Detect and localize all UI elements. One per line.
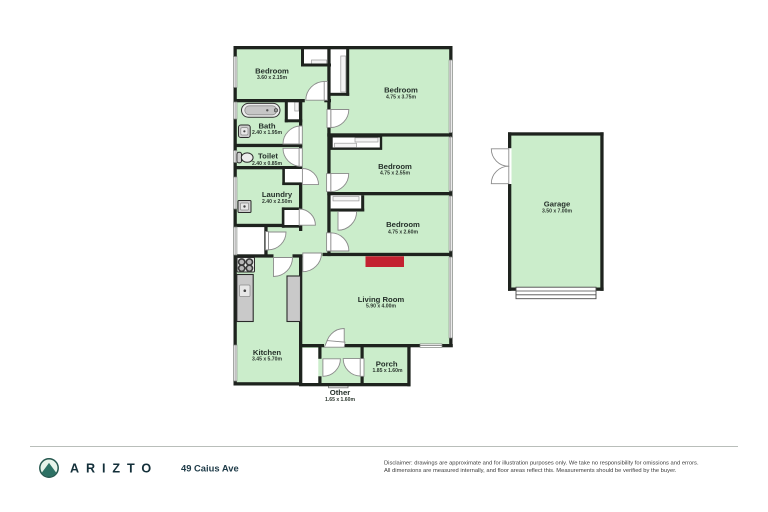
svg-text:4.75 x 3.75m: 4.75 x 3.75m: [386, 95, 416, 101]
svg-text:3.50 x 7.00m: 3.50 x 7.00m: [542, 209, 572, 215]
svg-text:ARIZTO: ARIZTO: [70, 461, 158, 475]
svg-text:Disclaimer: drawings are appro: Disclaimer: drawings are approximate and…: [384, 461, 699, 467]
svg-text:49 Caius Ave: 49 Caius Ave: [181, 462, 239, 473]
svg-text:Bedroom: Bedroom: [386, 220, 420, 229]
svg-text:Toilet: Toilet: [258, 152, 278, 161]
svg-text:2.40 x 2.50m: 2.40 x 2.50m: [262, 199, 292, 205]
svg-text:1.85 x 1.60m: 1.85 x 1.60m: [372, 368, 402, 374]
svg-text:3.60 x 2.15m: 3.60 x 2.15m: [257, 75, 287, 81]
svg-text:4.75 x 2.60m: 4.75 x 2.60m: [388, 229, 418, 235]
svg-text:2.40 x 1.95m: 2.40 x 1.95m: [252, 130, 282, 136]
svg-text:Garage: Garage: [544, 199, 571, 208]
svg-text:5.90 x 4.00m: 5.90 x 4.00m: [366, 303, 396, 309]
svg-text:Other: Other: [330, 388, 351, 397]
svg-text:All dimensions are measured in: All dimensions are measured internally, …: [384, 468, 677, 474]
svg-text:4.75 x 2.55m: 4.75 x 2.55m: [380, 171, 410, 177]
svg-text:2.40 x 0.85m: 2.40 x 0.85m: [252, 161, 282, 167]
svg-text:3.45 x 5.70m: 3.45 x 5.70m: [252, 357, 282, 363]
svg-text:1.65 x 1.60m: 1.65 x 1.60m: [325, 397, 355, 403]
svg-text:Bedroom: Bedroom: [384, 85, 418, 94]
